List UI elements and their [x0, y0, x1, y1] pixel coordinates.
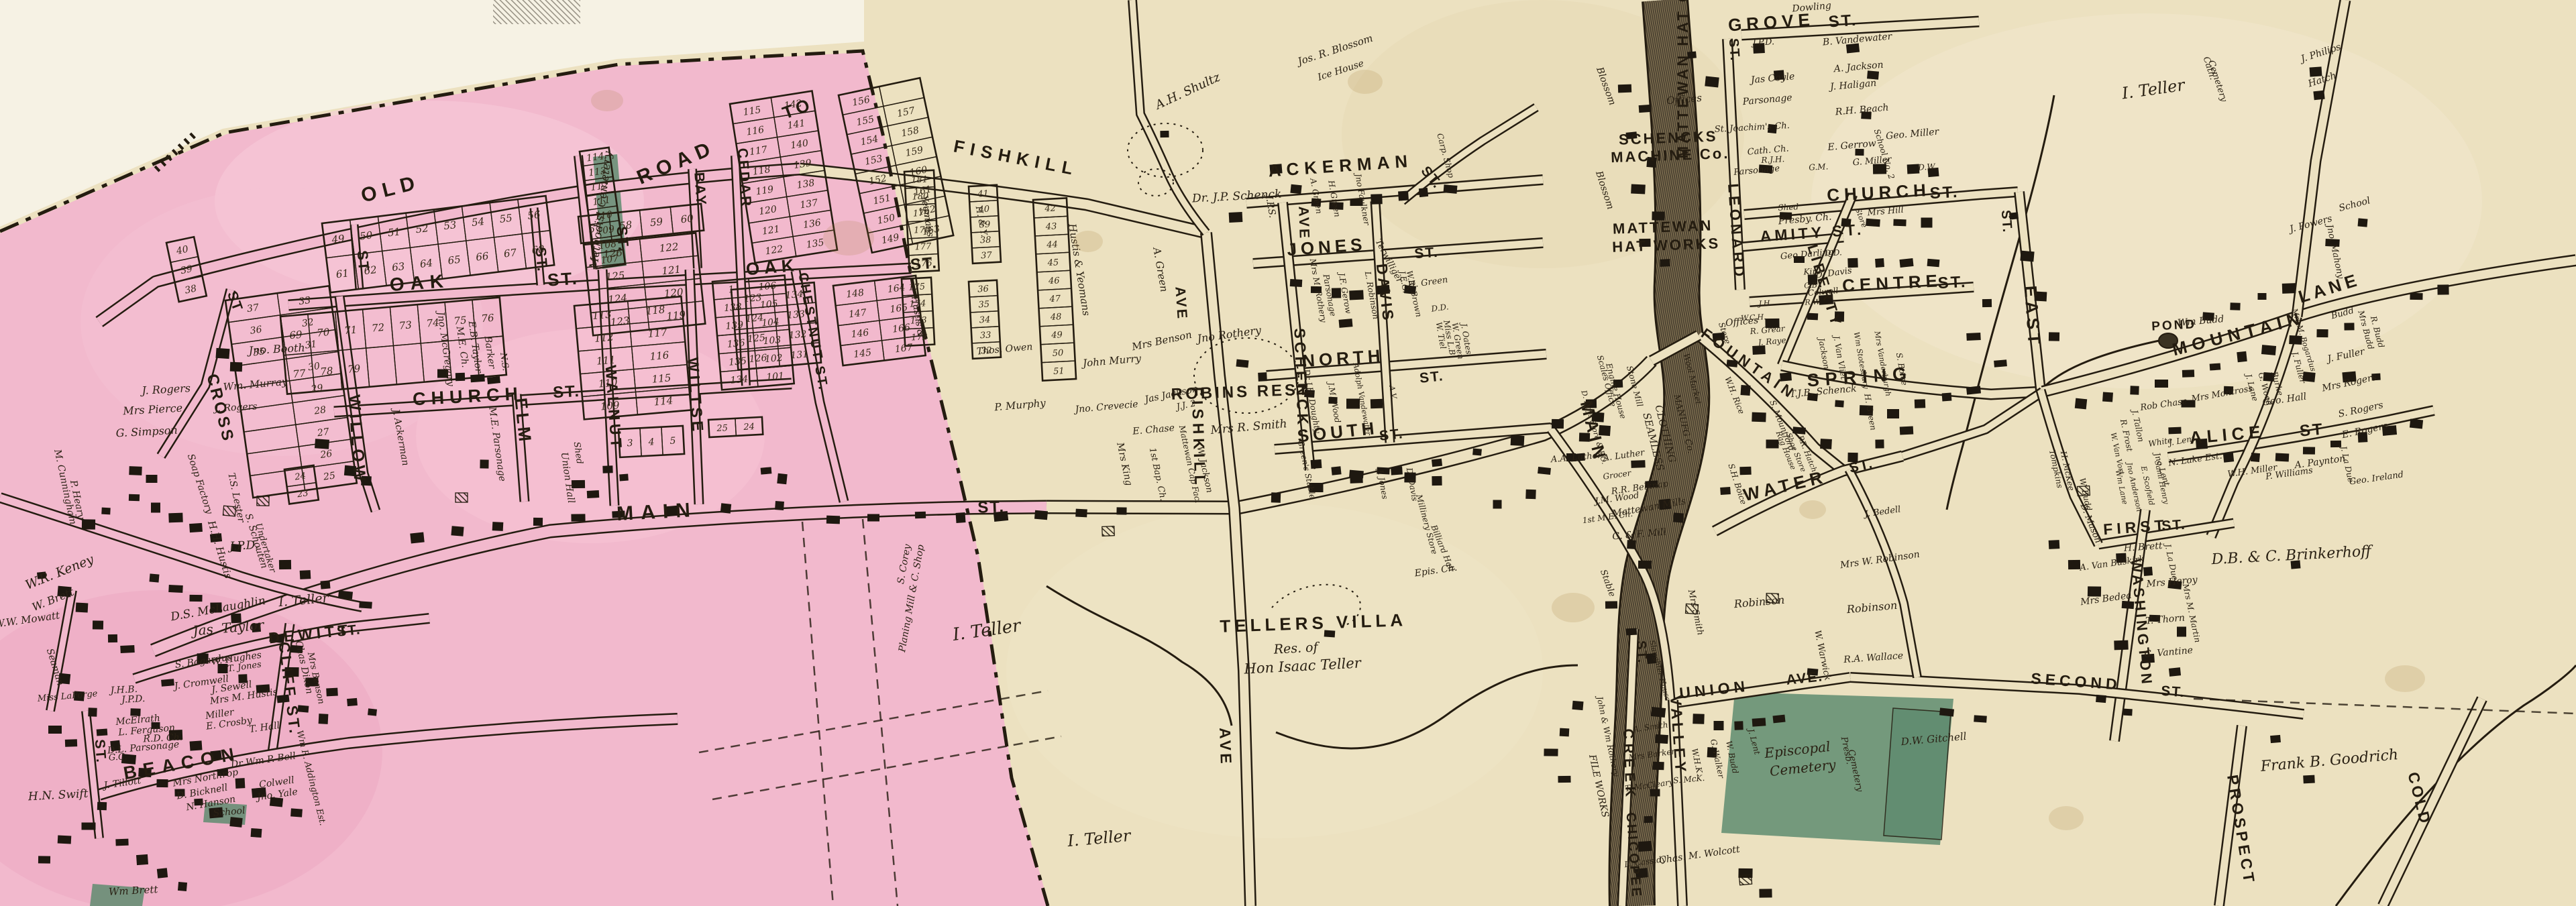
- building-mark: [2123, 709, 2133, 716]
- hatched-building-mark: [1739, 874, 1752, 885]
- lot-number: 25: [716, 423, 728, 434]
- building-mark: [1655, 734, 1668, 744]
- lot-number: 63: [391, 260, 405, 274]
- lot-number: 165: [890, 302, 909, 315]
- building-mark: [619, 474, 629, 482]
- building-mark: [1034, 510, 1048, 520]
- building-mark: [1660, 259, 1670, 267]
- building-mark: [2237, 351, 2247, 362]
- building-mark: [1560, 728, 1570, 737]
- lot-number: 32: [301, 317, 315, 329]
- building-mark: [1720, 487, 1731, 495]
- building-mark: [189, 523, 203, 532]
- lot-number: 42: [1044, 203, 1056, 214]
- building-mark: [1432, 459, 1442, 467]
- building-mark: [2223, 452, 2234, 462]
- lot-number: 79: [347, 362, 361, 376]
- street-label: ST.: [1419, 368, 1445, 386]
- building-mark: [1627, 540, 1636, 549]
- building-mark: [2261, 345, 2276, 355]
- lot-number: 126: [749, 353, 767, 365]
- building-mark: [1982, 299, 1992, 307]
- building-mark: [2344, 323, 2354, 330]
- street-label: ST: [2299, 420, 2325, 440]
- building-mark: [2410, 293, 2422, 300]
- building-mark: [338, 590, 353, 599]
- building-mark: [2130, 386, 2139, 394]
- building-mark: [487, 376, 500, 384]
- place-label: G.C.: [109, 752, 127, 762]
- lot-number: 41: [977, 189, 989, 200]
- building-mark: [2303, 447, 2315, 454]
- hatched-building-mark: [1102, 526, 1114, 536]
- street-label: ST.: [1726, 38, 1742, 62]
- building-mark: [602, 465, 612, 473]
- building-mark: [1444, 184, 1458, 194]
- lot-number: 145: [853, 347, 872, 360]
- building-mark: [1759, 889, 1772, 897]
- lot-number: 25: [322, 470, 336, 482]
- building-mark: [470, 374, 485, 382]
- building-mark: [368, 708, 377, 716]
- lot-number: 131: [790, 349, 809, 361]
- lot-number: 59: [649, 215, 663, 229]
- building-mark: [571, 514, 585, 521]
- lot-number: 24: [743, 422, 755, 433]
- place-label: J.H.: [1757, 298, 1772, 308]
- building-mark: [2096, 695, 2106, 703]
- building-mark: [120, 645, 135, 653]
- street-label: AVE: [1216, 727, 1235, 766]
- building-mark: [1734, 721, 1743, 730]
- place-label: R.J.H.: [1760, 154, 1785, 165]
- paper-stain: [1799, 500, 1826, 519]
- lot-number: 47: [1049, 294, 1061, 304]
- building-mark: [347, 698, 358, 706]
- building-mark: [1714, 721, 1724, 730]
- paper-stain: [2385, 665, 2425, 692]
- building-mark: [129, 494, 140, 502]
- map-canvas: 4950515253545556616263646566676857585960…: [0, 0, 2576, 906]
- building-mark: [1887, 409, 1899, 418]
- building-mark: [161, 679, 174, 687]
- lot-number: 167: [894, 342, 914, 355]
- place-label: D.W.: [1917, 162, 1937, 172]
- building-mark: [1626, 628, 1638, 636]
- lot-number: 34: [979, 315, 990, 326]
- building-mark: [1544, 748, 1558, 756]
- building-mark: [410, 532, 424, 543]
- street-label: MATTEWAN: [1613, 217, 1713, 237]
- building-mark: [1752, 718, 1766, 726]
- building-mark: [279, 560, 291, 569]
- building-mark: [1371, 194, 1383, 205]
- lot-number: 148: [845, 288, 865, 300]
- building-mark: [1371, 399, 1383, 409]
- paper-stain: [1552, 593, 1595, 622]
- building-mark: [720, 503, 731, 513]
- building-mark: [1525, 490, 1536, 500]
- building-mark: [1258, 372, 1267, 382]
- building-mark: [1752, 412, 1766, 422]
- building-mark: [1493, 500, 1502, 509]
- building-mark: [251, 828, 262, 838]
- lot-number: 61: [335, 267, 350, 280]
- building-mark: [326, 688, 338, 697]
- building-mark: [151, 503, 160, 513]
- building-mark: [58, 835, 72, 844]
- building-mark: [775, 501, 784, 510]
- building-mark: [1398, 190, 1409, 201]
- lot-number: 50: [1052, 348, 1063, 359]
- lot-number: 60: [680, 212, 694, 225]
- lot-number: 65: [447, 253, 462, 267]
- building-mark: [1271, 492, 1281, 502]
- lot-number: 44: [1046, 239, 1058, 250]
- lot-number: 37: [246, 302, 260, 315]
- building-mark: [178, 882, 187, 891]
- place-label: Shed: [1778, 202, 1799, 213]
- building-mark: [290, 808, 303, 817]
- building-mark: [1835, 400, 1844, 408]
- street-label: AVE: [1295, 206, 1312, 240]
- lot-number: 29: [310, 383, 324, 395]
- building-mark: [451, 526, 464, 536]
- lot-number: 54: [471, 215, 485, 229]
- lot-number: 116: [649, 349, 670, 362]
- building-mark: [156, 779, 168, 787]
- paper-stain: [823, 221, 874, 256]
- building-mark: [150, 573, 160, 582]
- building-mark: [1391, 466, 1403, 475]
- building-mark: [216, 348, 230, 359]
- lot-number: 27: [316, 427, 330, 439]
- street-label: ST.: [2161, 683, 2186, 700]
- building-mark: [955, 512, 965, 523]
- presbyterian-cemetery-area: [1884, 708, 1951, 840]
- lot-number: 121: [661, 264, 681, 278]
- place-label: D.D.: [1823, 247, 1842, 258]
- building-mark: [1939, 707, 1954, 716]
- street-label: MAIN: [616, 499, 698, 525]
- building-mark: [2358, 218, 2368, 227]
- building-mark: [1875, 439, 1884, 448]
- building-mark: [1346, 399, 1360, 409]
- street-label: ST.: [532, 246, 551, 273]
- building-mark: [1538, 467, 1551, 475]
- street-label: ST.: [1633, 640, 1650, 664]
- lot-number: 36: [977, 284, 989, 295]
- building-mark: [101, 508, 111, 515]
- place-label: W.C.H.: [1741, 313, 1766, 323]
- building-mark: [93, 620, 103, 629]
- building-mark: [235, 778, 246, 789]
- building-mark: [2169, 667, 2181, 677]
- building-mark: [1900, 426, 1914, 435]
- lot-number: 50: [359, 229, 374, 242]
- building-mark: [1644, 816, 1652, 823]
- street-label: ST.: [1998, 209, 2015, 233]
- building-mark: [157, 868, 168, 878]
- road: [1046, 507, 1238, 508]
- lot-number: 125: [605, 269, 625, 283]
- paper-stain: [1073, 231, 1103, 252]
- building-mark: [229, 817, 242, 828]
- street-label: AVE: [1172, 286, 1189, 321]
- lot-number: 76: [481, 312, 495, 325]
- building-mark: [115, 839, 128, 846]
- street-label: ST: [354, 249, 373, 272]
- hatched-building-mark: [455, 493, 468, 502]
- lot-number: 3: [627, 438, 633, 449]
- building-mark: [1290, 279, 1303, 287]
- building-mark: [1160, 131, 1169, 137]
- street-label: OAK: [389, 270, 450, 295]
- building-mark: [1740, 385, 1750, 396]
- lot-number: 37: [981, 250, 993, 261]
- building-mark: [1229, 212, 1243, 223]
- lot-number: 175: [908, 282, 926, 292]
- lot-number: 124: [745, 313, 764, 325]
- building-mark: [2303, 775, 2315, 784]
- building-mark: [1331, 466, 1341, 475]
- building-mark: [82, 519, 95, 529]
- lot-number: 70: [317, 326, 331, 339]
- lot-number: 115: [651, 372, 672, 385]
- hatched-building-mark: [257, 496, 269, 506]
- street-label: ST.: [92, 739, 109, 765]
- lot-number: 117: [647, 326, 668, 339]
- lot-number: 134: [730, 374, 749, 386]
- building-mark: [867, 514, 879, 522]
- lot-number: 48: [1050, 312, 1062, 323]
- lot-number: 147: [848, 307, 867, 320]
- building-mark: [587, 490, 600, 498]
- building-mark: [168, 513, 182, 523]
- lot-number: 114: [653, 394, 674, 408]
- building-mark: [1705, 76, 1719, 87]
- building-mark: [1942, 393, 1952, 402]
- building-mark: [1650, 789, 1660, 797]
- building-mark: [65, 739, 77, 747]
- building-mark: [319, 714, 329, 724]
- building-mark: [1116, 507, 1126, 514]
- building-mark: [1772, 715, 1785, 724]
- street-label: ST.: [336, 622, 362, 640]
- building-mark: [2230, 302, 2240, 310]
- building-mark: [189, 595, 202, 602]
- building-mark: [1739, 467, 1751, 475]
- building-mark: [146, 475, 158, 483]
- building-mark: [315, 439, 329, 449]
- building-mark: [2068, 560, 2080, 569]
- building-mark: [1572, 701, 1583, 710]
- building-mark: [1552, 419, 1564, 429]
- place-label: J. Rogers: [140, 382, 191, 397]
- building-mark: [1693, 714, 1705, 724]
- lot-number: 125: [747, 333, 765, 345]
- building-mark: [1652, 762, 1664, 771]
- lot-number: 5: [669, 436, 676, 447]
- building-mark: [2316, 329, 2328, 337]
- lot-number: 51: [387, 225, 401, 239]
- building-mark: [915, 512, 926, 519]
- lot-number: 45: [1046, 258, 1059, 268]
- building-mark: [2182, 370, 2194, 378]
- building-mark: [492, 522, 504, 531]
- building-mark: [48, 726, 62, 734]
- street-label: BAY: [691, 172, 709, 207]
- paper-stain: [2049, 806, 2084, 830]
- building-mark: [1893, 219, 1906, 227]
- street-label: ST.: [1828, 11, 1858, 32]
- building-mark: [2437, 284, 2449, 294]
- lot-number: 132: [788, 329, 807, 341]
- street-label: SCHENCKS: [1619, 127, 1718, 148]
- lot-number: 177: [914, 241, 932, 252]
- lot-number: 66: [475, 250, 490, 264]
- building-mark: [1290, 184, 1301, 194]
- building-mark: [1921, 218, 1933, 228]
- lot-number: 26: [319, 449, 333, 461]
- lot-number: 30: [307, 361, 321, 373]
- lot-number: 103: [763, 335, 782, 347]
- building-mark: [1899, 258, 1913, 268]
- building-mark: [1820, 439, 1832, 449]
- lot-number: 146: [851, 327, 870, 340]
- building-mark: [82, 823, 96, 830]
- building-mark: [1558, 776, 1570, 783]
- paper-stain: [591, 90, 623, 111]
- building-mark: [2210, 363, 2221, 370]
- lot-number: 71: [343, 324, 358, 337]
- building-mark: [38, 856, 50, 863]
- lot-number: 28: [313, 404, 327, 416]
- lot-number: 49: [1051, 330, 1063, 341]
- building-mark: [1766, 440, 1779, 449]
- building-mark: [88, 707, 97, 716]
- building-mark: [1419, 188, 1428, 197]
- street-label: ST.: [1937, 273, 1968, 292]
- building-mark: [480, 459, 488, 468]
- building-mark: [2049, 540, 2060, 549]
- building-mark: [2177, 627, 2186, 637]
- lot-number: 105: [759, 298, 778, 310]
- building-mark: [76, 603, 89, 613]
- building-mark: [2258, 293, 2267, 300]
- building-mark: [2102, 392, 2113, 402]
- building-mark: [1605, 601, 1617, 608]
- building-mark: [2275, 453, 2290, 461]
- lot-number: 36: [250, 324, 263, 336]
- street-label: ST.: [977, 498, 1006, 516]
- building-mark: [2313, 91, 2324, 101]
- building-mark: [777, 473, 787, 484]
- place-label: J.P.D.: [1750, 37, 1774, 48]
- building-mark: [533, 518, 543, 526]
- street-label: ST.: [1414, 245, 1440, 262]
- building-mark: [2049, 332, 2059, 341]
- building-mark: [2270, 735, 2281, 743]
- building-mark: [136, 854, 148, 865]
- lot-number: 4: [647, 437, 655, 447]
- lot-number: 33: [298, 295, 311, 307]
- building-mark: [1339, 319, 1353, 328]
- building-mark: [108, 634, 117, 642]
- building-mark: [1631, 184, 1646, 194]
- lot-number: 123: [743, 292, 762, 304]
- place-label: Res. of: [1273, 640, 1320, 657]
- building-mark: [1915, 399, 1925, 408]
- building-mark: [1618, 84, 1631, 93]
- place-label: J.P.D.: [227, 539, 259, 553]
- street-label: ST.: [553, 382, 581, 402]
- lot-number: 35: [978, 300, 989, 310]
- building-mark: [1350, 474, 1362, 484]
- lot-number: 49: [330, 232, 345, 245]
- building-mark: [826, 516, 840, 524]
- building-mark: [1511, 435, 1525, 446]
- lot-number: 118: [645, 304, 665, 317]
- building-mark: [1075, 509, 1087, 518]
- building-mark: [1651, 707, 1666, 718]
- building-mark: [1311, 459, 1322, 469]
- map-stage: 4950515253545556616263646566676857585960…: [0, 0, 2576, 906]
- lot-number: 123: [610, 315, 630, 329]
- lot-number: 73: [398, 319, 413, 332]
- building-mark: [230, 362, 242, 372]
- building-mark: [300, 570, 311, 579]
- place-label: J.P.D.: [119, 693, 146, 705]
- building-mark: [761, 467, 772, 474]
- building-mark: [2282, 283, 2296, 294]
- lot-number: 124: [608, 292, 628, 306]
- building-mark: [1966, 386, 1981, 394]
- building-mark: [1639, 105, 1652, 113]
- building-mark: [1974, 715, 1987, 722]
- street-label: ST.: [613, 225, 632, 252]
- place-label: G.M.: [1809, 162, 1829, 172]
- building-mark: [2114, 640, 2128, 650]
- lot-number: 23: [296, 488, 309, 500]
- lot-number: 56: [527, 209, 541, 222]
- building-mark: [129, 466, 142, 475]
- lot-number: 31: [305, 339, 318, 351]
- building-mark: [1927, 259, 1940, 268]
- building-mark: [1994, 359, 2007, 367]
- building-mark: [2168, 427, 2181, 435]
- lot-number: 67: [503, 246, 518, 260]
- building-mark: [2075, 398, 2087, 410]
- building-mark: [1875, 258, 1884, 268]
- building-mark: [97, 802, 107, 810]
- lot-number: 101: [766, 371, 785, 383]
- building-mark: [321, 580, 331, 589]
- building-mark: [1807, 313, 1819, 321]
- lot-number: 55: [499, 212, 513, 225]
- sheet-edge-hatch: [493, 0, 580, 24]
- place-label: R.W.: [1804, 297, 1821, 306]
- building-mark: [2251, 453, 2260, 462]
- building-mark: [168, 585, 183, 593]
- building-mark: [97, 728, 108, 736]
- building-mark: [1792, 427, 1806, 435]
- building-mark: [1966, 333, 1981, 341]
- lot-number: 72: [371, 321, 385, 335]
- building-mark: [2020, 251, 2034, 262]
- street-label: ST.: [1929, 183, 1960, 203]
- building-mark: [455, 373, 465, 381]
